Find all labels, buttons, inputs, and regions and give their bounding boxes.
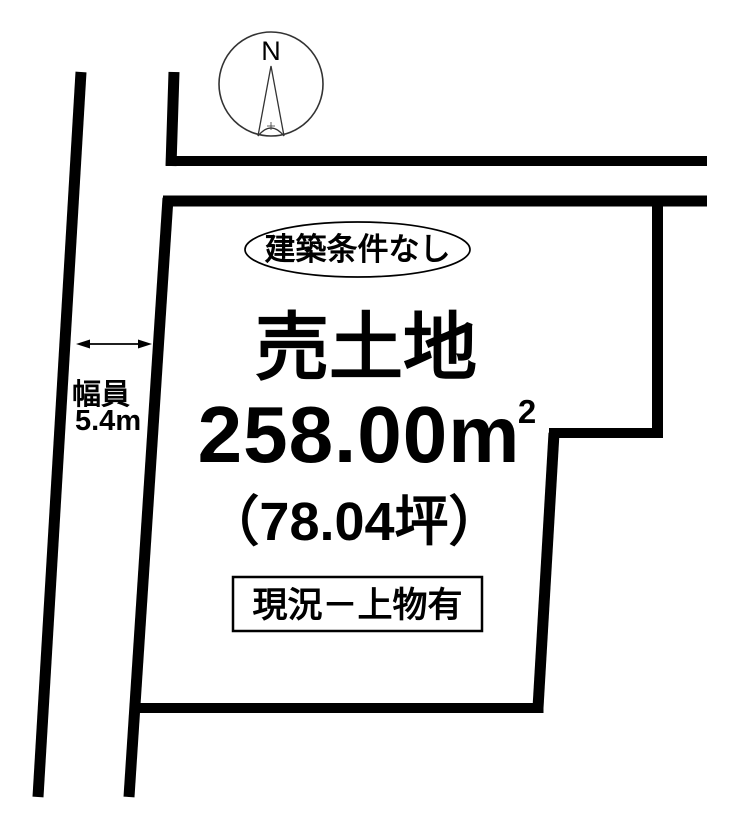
- compass-north-label: N: [261, 36, 281, 66]
- plot-area-m2: 258.00m: [198, 390, 521, 479]
- diagram-svg: N 幅員 5.4m 建築条件なし 売土地 258.00m 2 （78.04坪） …: [0, 0, 740, 836]
- status-label: 現況－上物有: [252, 586, 462, 625]
- condition-badge-label: 建築条件なし: [265, 232, 451, 267]
- plot-title: 売土地: [255, 306, 477, 389]
- land-plot-diagram: N 幅員 5.4m 建築条件なし 売土地 258.00m 2 （78.04坪） …: [0, 0, 740, 836]
- condition-badge: 建築条件なし: [245, 222, 470, 277]
- plot-area-tsubo: （78.04坪）: [205, 492, 502, 552]
- road-right-edge-upper-line: [171, 72, 174, 166]
- plot-area-m2-superscript: 2: [518, 393, 536, 430]
- road-width-value: 5.4m: [75, 405, 141, 437]
- status-box: 現況－上物有: [233, 577, 482, 631]
